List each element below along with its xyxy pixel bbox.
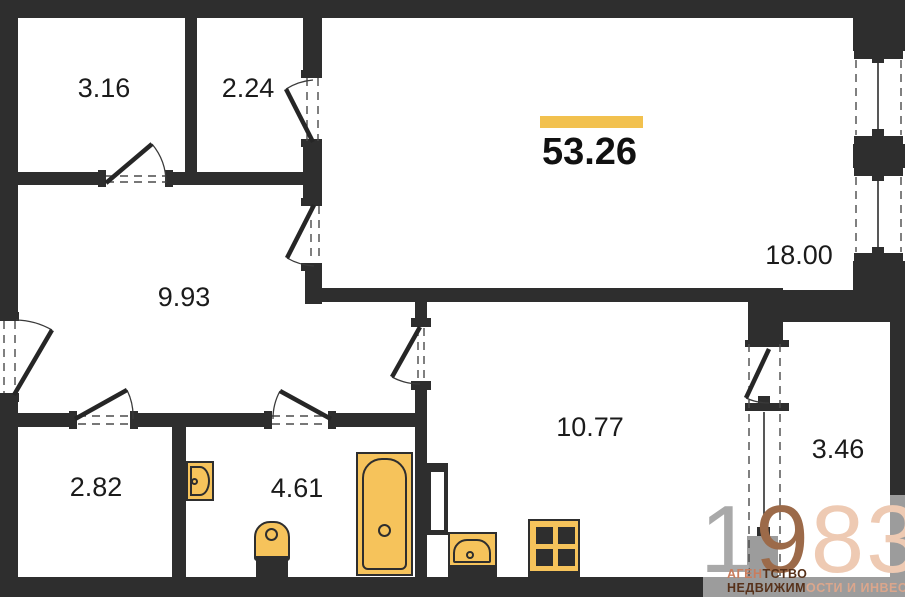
window-frame-node	[758, 396, 770, 404]
washbasin-drain	[191, 478, 198, 485]
room-area-label-hallway: 9.93	[124, 280, 244, 314]
door-jamb-cap	[264, 411, 272, 429]
toilet	[254, 521, 290, 561]
wall-bottom	[0, 577, 703, 597]
wall-living-left-upper	[303, 18, 322, 75]
door-jamb-cap	[69, 411, 77, 429]
window-frame-node	[872, 174, 884, 181]
stove-burner	[536, 527, 553, 544]
bathtub-inner	[362, 458, 407, 570]
toilet-tank	[256, 556, 288, 577]
door-jamb-cap	[301, 263, 322, 271]
wall-left-upper	[0, 0, 18, 320]
room-area-label-wardrobe: 2.82	[36, 470, 156, 504]
door-jamb-cap	[411, 381, 431, 390]
wall-left-lower	[0, 395, 18, 597]
ventilation-shaft-inner	[431, 472, 444, 530]
room-area-label-bathroom: 4.61	[237, 471, 357, 505]
stove-base	[528, 571, 580, 577]
window-sill	[854, 136, 903, 144]
wall-wardrobe-top	[18, 413, 75, 427]
total-area-label: 53.26	[522, 131, 657, 173]
toilet-detail	[265, 528, 278, 541]
balcony-door-sill	[745, 340, 789, 347]
stove-burner	[558, 527, 575, 544]
wall-kitchen-left-lower	[415, 384, 427, 577]
door-jamb-cap	[98, 170, 106, 187]
wall-living-kitchen	[310, 288, 752, 302]
wall-living-left-mid	[303, 143, 322, 202]
kitchen-sink-base	[448, 565, 497, 577]
window-frame-node	[872, 247, 884, 254]
balcony-glazing-panel	[747, 536, 778, 577]
door-jamb-cap	[411, 318, 431, 327]
balcony-wall-right-lower	[890, 495, 905, 577]
wall-bathroom-top-right	[331, 413, 415, 427]
room-area-label-living: 18.00	[739, 238, 859, 272]
balcony-door-jamb	[748, 288, 783, 343]
stove-burner	[558, 549, 575, 566]
room-area-label-storage-1: 3.16	[44, 71, 164, 105]
door-jamb-cap	[130, 411, 138, 429]
wall-living-balcony	[780, 290, 905, 322]
balcony-wall-right	[890, 322, 905, 495]
room-area-label-balcony: 3.46	[778, 432, 898, 466]
window-sill	[854, 253, 903, 261]
window-frame-node	[872, 129, 884, 136]
room-area-label-kitchen: 10.77	[530, 410, 650, 444]
room-area-label-storage-2: 2.24	[188, 71, 308, 105]
balcony-door-sill	[745, 403, 789, 411]
total-area-accent-bar	[540, 116, 643, 128]
door-jamb-cap	[301, 139, 322, 147]
kitchen-sink-drain	[466, 551, 474, 559]
stove-burner	[536, 549, 553, 566]
balcony-wall-bottom	[703, 577, 905, 597]
window-frame-node	[872, 56, 884, 63]
floor-plan: 53.26 3.16 2.24 18.00 9.93 2.82 4.61 10.…	[0, 0, 905, 600]
wall-top	[0, 0, 853, 18]
watermark-digits: 1983	[700, 492, 905, 588]
bathtub-drain	[378, 524, 391, 537]
wall-hallway-top-right	[170, 172, 322, 185]
wall-top-right-corner	[853, 0, 905, 51]
wall-hallway-top-left	[18, 172, 103, 185]
door-jamb-cap	[165, 170, 173, 187]
wall-bathroom-top-left	[133, 413, 269, 427]
door-jamb-cap	[0, 393, 19, 402]
door-jamb-cap	[0, 312, 19, 321]
door-jamb-cap	[328, 411, 336, 429]
wall-wardrobe-bathroom-divider	[172, 413, 186, 577]
door-jamb-cap	[301, 198, 322, 206]
window-pier	[853, 144, 905, 168]
